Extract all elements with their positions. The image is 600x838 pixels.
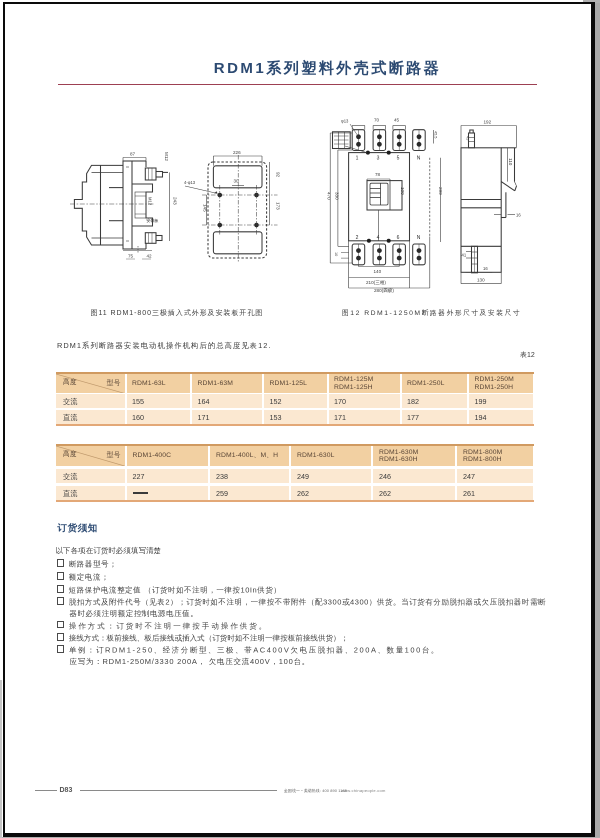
svg-text:φ13: φ13 xyxy=(341,119,349,124)
svg-text:110: 110 xyxy=(508,158,513,166)
svg-text:3: 3 xyxy=(377,156,380,162)
svg-text:N: N xyxy=(417,235,421,241)
svg-text:130: 130 xyxy=(477,277,485,282)
svg-text:100: 100 xyxy=(400,187,405,195)
svg-text:5: 5 xyxy=(397,156,400,162)
svg-text:6: 6 xyxy=(397,235,400,241)
svg-text:87: 87 xyxy=(130,152,136,157)
svg-text:30: 30 xyxy=(234,179,240,184)
svg-text:299: 299 xyxy=(438,187,443,195)
svg-text:42: 42 xyxy=(147,254,153,259)
svg-text:75: 75 xyxy=(128,254,134,259)
svg-text:安装板: 安装板 xyxy=(147,218,159,223)
svg-text:41: 41 xyxy=(462,253,467,258)
svg-text:4-φ13: 4-φ13 xyxy=(184,180,196,185)
svg-text:M12: M12 xyxy=(148,197,153,206)
svg-text:16: 16 xyxy=(483,266,488,271)
svg-text:45: 45 xyxy=(466,136,470,140)
svg-text:10: 10 xyxy=(334,252,338,256)
svg-text:280(四极): 280(四极) xyxy=(374,287,394,294)
svg-text:92: 92 xyxy=(276,172,281,178)
svg-text:45: 45 xyxy=(394,118,400,123)
svg-text:2: 2 xyxy=(356,235,359,241)
svg-text:M12: M12 xyxy=(164,152,169,161)
svg-text:330: 330 xyxy=(335,192,340,200)
svg-text:243: 243 xyxy=(173,197,178,205)
svg-text:226: 226 xyxy=(233,150,241,155)
svg-text:192: 192 xyxy=(484,120,492,125)
svg-text:470: 470 xyxy=(327,192,332,200)
svg-text:4: 4 xyxy=(377,235,380,241)
svg-text:140: 140 xyxy=(374,269,382,274)
svg-text:45.5: 45.5 xyxy=(434,131,438,138)
svg-text:210(三相): 210(三相) xyxy=(366,279,386,285)
svg-text:78: 78 xyxy=(375,172,381,177)
svg-text:173: 173 xyxy=(276,202,281,210)
svg-text:70: 70 xyxy=(374,118,380,123)
svg-text:N: N xyxy=(417,156,421,162)
svg-text:145: 145 xyxy=(203,204,208,212)
svg-text:16: 16 xyxy=(516,213,521,218)
svg-text:1: 1 xyxy=(356,156,359,162)
